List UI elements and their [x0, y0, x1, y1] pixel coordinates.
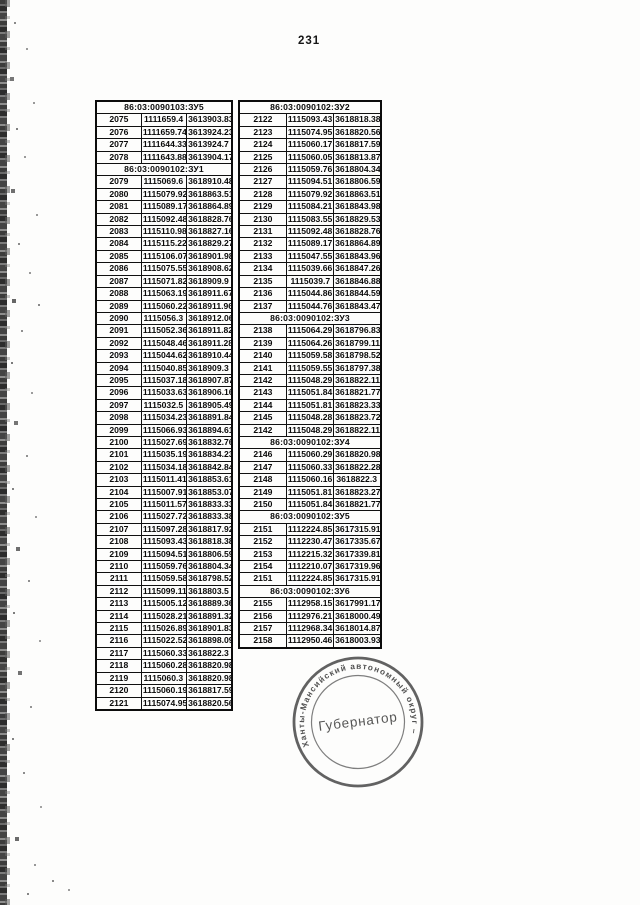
- x-coordinate-cell: 1115060.33: [141, 647, 186, 659]
- y-coordinate-cell: 3618822.11: [334, 374, 381, 386]
- table-row: 21231115074.953618820.56: [239, 126, 381, 138]
- x-coordinate-cell: 1115084.21: [286, 201, 333, 213]
- section-header-row: 86:03:0090102:ЗУ2: [239, 101, 381, 114]
- y-coordinate-cell: 3613903.83: [187, 114, 232, 126]
- y-coordinate-cell: 3618891.32: [187, 610, 232, 622]
- x-coordinate-cell: 1115094.51: [286, 176, 333, 188]
- x-coordinate-cell: 1115011.57: [141, 499, 186, 511]
- y-coordinate-cell: 3618908.62: [187, 263, 232, 275]
- x-coordinate-cell: 1112210.07: [286, 561, 333, 573]
- table-row: 20901115056.33618912.06: [96, 312, 232, 324]
- y-coordinate-cell: 3618796.83: [334, 325, 381, 337]
- y-coordinate-cell: 3618798.52: [334, 350, 381, 362]
- table-row: 20841115115.223618829.27: [96, 238, 232, 250]
- y-coordinate-cell: 3618827.16: [187, 226, 232, 238]
- point-number-cell: 2123: [239, 126, 286, 138]
- table-row: 21251115060.053618813.87: [239, 151, 381, 163]
- x-coordinate-cell: 1115051.84: [286, 387, 333, 399]
- y-coordinate-cell: 3618912.06: [187, 312, 232, 324]
- table-row: 20921115048.463618911.28: [96, 337, 232, 349]
- point-number-cell: 2154: [239, 561, 286, 573]
- table-row: 21221115093.433618818.38: [239, 114, 381, 126]
- y-coordinate-cell: 3618823.33: [334, 399, 381, 411]
- y-coordinate-cell: 3618014.87: [334, 623, 381, 635]
- table-row: 21421115048.293618822.11: [239, 424, 381, 436]
- point-number-cell: 2136: [239, 288, 286, 300]
- table-row: 21271115094.513618806.59: [239, 176, 381, 188]
- y-coordinate-cell: 3618891.84: [187, 412, 232, 424]
- x-coordinate-cell: 1115047.55: [286, 250, 333, 262]
- table-row: 20961115033.633618906.16: [96, 387, 232, 399]
- table-row: 21551112958.153617991.17: [239, 598, 381, 610]
- y-coordinate-cell: 3617315.91: [334, 573, 381, 585]
- y-coordinate-cell: 3618820.98: [187, 660, 232, 672]
- table-row: 21151115026.893618901.83: [96, 623, 232, 635]
- table-row: 20991115066.933618894.61: [96, 424, 232, 436]
- y-coordinate-cell: 3618901.83: [187, 623, 232, 635]
- x-coordinate-cell: 1112976.21: [286, 610, 333, 622]
- point-number-cell: 2107: [96, 523, 141, 535]
- table-row: 20811115089.173618864.89: [96, 201, 232, 213]
- y-coordinate-cell: 3618844.59: [334, 288, 381, 300]
- y-coordinate-cell: 3618822.11: [334, 424, 381, 436]
- x-coordinate-cell: 1115005.12: [141, 598, 186, 610]
- y-coordinate-cell: 3618843.96: [334, 250, 381, 262]
- table-row: 20861115075.553618908.62: [96, 263, 232, 275]
- point-number-cell: 2138: [239, 325, 286, 337]
- point-number-cell: 2080: [96, 188, 141, 200]
- y-coordinate-cell: 3618911.82: [187, 325, 232, 337]
- y-coordinate-cell: 3618817.59: [334, 139, 381, 151]
- table-row: 21311115092.483618828.76: [239, 226, 381, 238]
- point-number-cell: 2082: [96, 213, 141, 225]
- y-coordinate-cell: 3618909.9: [187, 275, 232, 287]
- point-number-cell: 2105: [96, 499, 141, 511]
- table-row: 21401115059.583618798.52: [239, 350, 381, 362]
- point-number-cell: 2115: [96, 623, 141, 635]
- table-row: 21171115060.333618822.3: [96, 647, 232, 659]
- y-coordinate-cell: 3618828.76: [334, 226, 381, 238]
- y-coordinate-cell: 3618820.56: [334, 126, 381, 138]
- y-coordinate-cell: 3618911.67: [187, 288, 232, 300]
- x-coordinate-cell: 1115060.3: [141, 672, 186, 684]
- point-number-cell: 2144: [239, 399, 286, 411]
- y-coordinate-cell: 3618901.98: [187, 250, 232, 262]
- point-number-cell: 2108: [96, 536, 141, 548]
- x-coordinate-cell: 1115060.33: [286, 461, 333, 473]
- point-number-cell: 2096: [96, 387, 141, 399]
- point-number-cell: 2124: [239, 139, 286, 151]
- point-number-cell: 2095: [96, 374, 141, 386]
- x-coordinate-cell: 1115060.19: [141, 685, 186, 697]
- x-coordinate-cell: 1115060.17: [286, 139, 333, 151]
- point-number-cell: 2120: [96, 685, 141, 697]
- scan-noise-specks: [0, 0, 2, 2]
- y-coordinate-cell: 3618905.49: [187, 399, 232, 411]
- point-number-cell: 2141: [239, 362, 286, 374]
- x-coordinate-cell: 1112958.15: [286, 598, 333, 610]
- point-number-cell: 2149: [239, 486, 286, 498]
- coordinates-table-right: 86:03:0090102:ЗУ221221115093.433618818.3…: [238, 100, 382, 649]
- y-coordinate-cell: 3618817.59: [187, 685, 232, 697]
- section-header: 86:03:0090102:ЗУ4: [239, 436, 381, 448]
- x-coordinate-cell: 1115059.55: [286, 362, 333, 374]
- x-coordinate-cell: 1112224.85: [286, 523, 333, 535]
- point-number-cell: 2156: [239, 610, 286, 622]
- x-coordinate-cell: 1112968.34: [286, 623, 333, 635]
- table-row: 20821115092.483618828.76: [96, 213, 232, 225]
- section-header: 86:03:0090103:ЗУ5: [96, 101, 232, 114]
- point-number-cell: 2101: [96, 449, 141, 461]
- section-header: 86:03:0090102:ЗУ6: [239, 585, 381, 597]
- table-row: 21571112968.343618014.87: [239, 623, 381, 635]
- section-header-row: 86:03:0090102:ЗУ5: [239, 511, 381, 523]
- point-number-cell: 2114: [96, 610, 141, 622]
- x-coordinate-cell: 1115059.58: [141, 573, 186, 585]
- x-coordinate-cell: 1112215.32: [286, 548, 333, 560]
- x-coordinate-cell: 1115094.51: [141, 548, 186, 560]
- table-row: 21441115051.813618823.33: [239, 399, 381, 411]
- table-row: 21021115034.183618842.84: [96, 461, 232, 473]
- table-row: 20881115063.193618911.67: [96, 288, 232, 300]
- y-coordinate-cell: 3618823.72: [334, 412, 381, 424]
- table-row: 21051115011.573618833.33: [96, 499, 232, 511]
- x-coordinate-cell: 1115059.76: [286, 164, 333, 176]
- stamp-center-text: Губернатор: [318, 709, 399, 734]
- table-row: 20971115032.53618905.49: [96, 399, 232, 411]
- section-header-row: 86:03:0090102:ЗУ1: [96, 164, 232, 176]
- y-coordinate-cell: 3618846.88: [334, 275, 381, 287]
- x-coordinate-cell: 1115007.91: [141, 486, 186, 498]
- x-coordinate-cell: 1115071.82: [141, 275, 186, 287]
- y-coordinate-cell: 3618820.98: [334, 449, 381, 461]
- table-row: 21071115097.283618817.92: [96, 523, 232, 535]
- x-coordinate-cell: 1115060.22: [141, 300, 186, 312]
- point-number-cell: 2093: [96, 350, 141, 362]
- y-coordinate-cell: 3618821.77: [334, 387, 381, 399]
- point-number-cell: 2127: [239, 176, 286, 188]
- x-coordinate-cell: 1115063.19: [141, 288, 186, 300]
- y-coordinate-cell: 3618806.59: [187, 548, 232, 560]
- table-row: 20941115040.853618909.3: [96, 362, 232, 374]
- y-coordinate-cell: 3618863.51: [334, 188, 381, 200]
- y-coordinate-cell: 3618832.76: [187, 436, 232, 448]
- y-coordinate-cell: 3618863.51: [187, 188, 232, 200]
- x-coordinate-cell: 1115093.43: [286, 114, 333, 126]
- y-coordinate-cell: 3618909.3: [187, 362, 232, 374]
- point-number-cell: 2091: [96, 325, 141, 337]
- table-row: 21181115060.283618820.98: [96, 660, 232, 672]
- x-coordinate-cell: 1115083.55: [286, 213, 333, 225]
- point-number-cell: 2128: [239, 188, 286, 200]
- table-row: 21211115074.953618820.56: [96, 697, 232, 710]
- y-coordinate-cell: 3618906.16: [187, 387, 232, 399]
- x-coordinate-cell: 1115060.05: [286, 151, 333, 163]
- x-coordinate-cell: 1115075.55: [141, 263, 186, 275]
- point-number-cell: 2109: [96, 548, 141, 560]
- x-coordinate-cell: 1111644.33: [141, 139, 186, 151]
- point-number-cell: 2130: [239, 213, 286, 225]
- y-coordinate-cell: 3618853.07: [187, 486, 232, 498]
- y-coordinate-cell: 3618911.96: [187, 300, 232, 312]
- x-coordinate-cell: 1115051.84: [286, 499, 333, 511]
- table-row: 21351115039.73618846.88: [239, 275, 381, 287]
- y-coordinate-cell: 3618822.3: [187, 647, 232, 659]
- table-row: 20911115052.363618911.82: [96, 325, 232, 337]
- table-row: 20851115106.073618901.98: [96, 250, 232, 262]
- table-row: 21541112210.073617319.96: [239, 561, 381, 573]
- y-coordinate-cell: 3618910.48: [187, 176, 232, 188]
- y-coordinate-cell: 3618898.09: [187, 635, 232, 647]
- table-row: 21081115093.433618818.38: [96, 536, 232, 548]
- point-number-cell: 2148: [239, 474, 286, 486]
- table-row: 21201115060.193618817.59: [96, 685, 232, 697]
- y-coordinate-cell: 3618911.28: [187, 337, 232, 349]
- x-coordinate-cell: 1111643.88: [141, 151, 186, 163]
- y-coordinate-cell: 3618798.52: [187, 573, 232, 585]
- y-coordinate-cell: 3618821.77: [334, 499, 381, 511]
- x-coordinate-cell: 1115060.28: [141, 660, 186, 672]
- table-row: 21261115059.763618804.34: [239, 164, 381, 176]
- x-coordinate-cell: 1115064.26: [286, 337, 333, 349]
- point-number-cell: 2092: [96, 337, 141, 349]
- table-row: 21451115048.283618823.72: [239, 412, 381, 424]
- x-coordinate-cell: 1115028.21: [141, 610, 186, 622]
- x-coordinate-cell: 1115097.28: [141, 523, 186, 535]
- point-number-cell: 2146: [239, 449, 286, 461]
- point-number-cell: 2102: [96, 461, 141, 473]
- table-row: 21321115089.173618864.89: [239, 238, 381, 250]
- x-coordinate-cell: 1115060.16: [286, 474, 333, 486]
- point-number-cell: 2078: [96, 151, 141, 163]
- table-row: 21461115060.293618820.98: [239, 449, 381, 461]
- point-number-cell: 2139: [239, 337, 286, 349]
- y-coordinate-cell: 3618823.27: [334, 486, 381, 498]
- table-row: 21001115027.693618832.76: [96, 436, 232, 448]
- point-number-cell: 2129: [239, 201, 286, 213]
- stamp-seal-icon: Ханты-Мансийский автономный округ – Югра…: [272, 636, 444, 808]
- x-coordinate-cell: 1115064.29: [286, 325, 333, 337]
- y-coordinate-cell: 3618804.34: [187, 561, 232, 573]
- point-number-cell: 2081: [96, 201, 141, 213]
- y-coordinate-cell: 3618847.26: [334, 263, 381, 275]
- x-coordinate-cell: 1115092.48: [286, 226, 333, 238]
- point-number-cell: 2140: [239, 350, 286, 362]
- x-coordinate-cell: 1115048.46: [141, 337, 186, 349]
- table-row: 20801115079.923618863.51: [96, 188, 232, 200]
- section-header-row: 86:03:0090102:ЗУ4: [239, 436, 381, 448]
- table-row: 21101115059.763618804.34: [96, 561, 232, 573]
- y-coordinate-cell: 3618833.38: [187, 511, 232, 523]
- table-row: 20931115044.623618910.44: [96, 350, 232, 362]
- y-coordinate-cell: 3618834.23: [187, 449, 232, 461]
- table-row: 20781111643.883613904.17: [96, 151, 232, 163]
- section-header-row: 86:03:0090103:ЗУ5: [96, 101, 232, 114]
- point-number-cell: 2098: [96, 412, 141, 424]
- point-number-cell: 2151: [239, 573, 286, 585]
- table-row: 21191115060.33618820.98: [96, 672, 232, 684]
- y-coordinate-cell: 3618820.98: [187, 672, 232, 684]
- table-row: 21291115084.213618843.98: [239, 201, 381, 213]
- table-row: 21511112224.853617315.91: [239, 523, 381, 535]
- point-number-cell: 2150: [239, 499, 286, 511]
- y-coordinate-cell: 3618797.38: [334, 362, 381, 374]
- point-number-cell: 2125: [239, 151, 286, 163]
- y-coordinate-cell: 3618842.84: [187, 461, 232, 473]
- x-coordinate-cell: 1115115.22: [141, 238, 186, 250]
- x-coordinate-cell: 1115026.89: [141, 623, 186, 635]
- x-coordinate-cell: 1115044.62: [141, 350, 186, 362]
- y-coordinate-cell: 3618000.49: [334, 610, 381, 622]
- y-coordinate-cell: 3617339.81: [334, 548, 381, 560]
- table-row: 21141115028.213618891.32: [96, 610, 232, 622]
- table-row: 21131115005.123618889.36: [96, 598, 232, 610]
- y-coordinate-cell: 3618833.33: [187, 499, 232, 511]
- x-coordinate-cell: 1115011.41: [141, 474, 186, 486]
- section-header: 86:03:0090102:ЗУ5: [239, 511, 381, 523]
- y-coordinate-cell: 3618799.11: [334, 337, 381, 349]
- point-number-cell: 2151: [239, 523, 286, 535]
- table-row: 20751111659.43613903.83: [96, 114, 232, 126]
- table-row: 21501115051.843618821.77: [239, 499, 381, 511]
- x-coordinate-cell: 1112230.47: [286, 536, 333, 548]
- table-row: 20871115071.823618909.9: [96, 275, 232, 287]
- y-coordinate-cell: 3617991.17: [334, 598, 381, 610]
- table-row: 21391115064.263618799.11: [239, 337, 381, 349]
- x-coordinate-cell: 1115056.3: [141, 312, 186, 324]
- point-number-cell: 2142: [239, 374, 286, 386]
- y-coordinate-cell: 3618828.76: [187, 213, 232, 225]
- y-coordinate-cell: 3618822.28: [334, 461, 381, 473]
- point-number-cell: 2111: [96, 573, 141, 585]
- x-coordinate-cell: 1111659.4: [141, 114, 186, 126]
- y-coordinate-cell: 3618817.92: [187, 523, 232, 535]
- y-coordinate-cell: 3618820.56: [187, 697, 232, 710]
- point-number-cell: 2118: [96, 660, 141, 672]
- table-row: 21531112215.323617339.81: [239, 548, 381, 560]
- point-number-cell: 2113: [96, 598, 141, 610]
- point-number-cell: 2103: [96, 474, 141, 486]
- table-row: 20791115069.63618910.48: [96, 176, 232, 188]
- coordinates-table-left: 86:03:0090103:ЗУ520751111659.43613903.83…: [95, 100, 233, 711]
- point-number-cell: 2100: [96, 436, 141, 448]
- y-coordinate-cell: 3618804.34: [334, 164, 381, 176]
- x-coordinate-cell: 1115066.93: [141, 424, 186, 436]
- x-coordinate-cell: 1115089.17: [286, 238, 333, 250]
- table-row: 21241115060.173618817.59: [239, 139, 381, 151]
- y-coordinate-cell: 3617319.96: [334, 561, 381, 573]
- x-coordinate-cell: 1115052.36: [141, 325, 186, 337]
- point-number-cell: 2142: [239, 424, 286, 436]
- document-page: 231 86:03:0090103:ЗУ520751111659.4361390…: [0, 0, 640, 905]
- point-number-cell: 2094: [96, 362, 141, 374]
- point-number-cell: 2079: [96, 176, 141, 188]
- section-header: 86:03:0090102:ЗУ1: [96, 164, 232, 176]
- y-coordinate-cell: 3618843.98: [334, 201, 381, 213]
- point-number-cell: 2126: [239, 164, 286, 176]
- point-number-cell: 2137: [239, 300, 286, 312]
- y-coordinate-cell: 3618806.59: [334, 176, 381, 188]
- table-row: 21061115027.723618833.38: [96, 511, 232, 523]
- point-number-cell: 2131: [239, 226, 286, 238]
- scan-edge-smudge: [5, 0, 10, 905]
- y-coordinate-cell: 3618864.89: [334, 238, 381, 250]
- y-coordinate-cell: 3618843.47: [334, 300, 381, 312]
- x-coordinate-cell: 1115040.85: [141, 362, 186, 374]
- x-coordinate-cell: 1115110.98: [141, 226, 186, 238]
- x-coordinate-cell: 1115032.5: [141, 399, 186, 411]
- x-coordinate-cell: 1115034.23: [141, 412, 186, 424]
- point-number-cell: 2117: [96, 647, 141, 659]
- y-coordinate-cell: 3618829.53: [334, 213, 381, 225]
- y-coordinate-cell: 3618894.61: [187, 424, 232, 436]
- x-coordinate-cell: 1115035.19: [141, 449, 186, 461]
- table-row: 21411115059.553618797.38: [239, 362, 381, 374]
- table-row: 21511112224.853617315.91: [239, 573, 381, 585]
- y-coordinate-cell: 3618889.36: [187, 598, 232, 610]
- table-row: 21031115011.413618853.61: [96, 474, 232, 486]
- y-coordinate-cell: 3618907.87: [187, 374, 232, 386]
- table-row: 21111115059.583618798.52: [96, 573, 232, 585]
- point-number-cell: 2086: [96, 263, 141, 275]
- x-coordinate-cell: 1115022.52: [141, 635, 186, 647]
- point-number-cell: 2106: [96, 511, 141, 523]
- page-number: 231: [298, 35, 342, 47]
- point-number-cell: 2085: [96, 250, 141, 262]
- table-row: 21121115099.113618803.5: [96, 585, 232, 597]
- point-number-cell: 2122: [239, 114, 286, 126]
- table-row: 21161115022.523618898.09: [96, 635, 232, 647]
- point-number-cell: 2110: [96, 561, 141, 573]
- table-row: 21521112230.473617335.67: [239, 536, 381, 548]
- x-coordinate-cell: 1115079.92: [286, 188, 333, 200]
- y-coordinate-cell: 3618818.38: [334, 114, 381, 126]
- x-coordinate-cell: 1115060.29: [286, 449, 333, 461]
- point-number-cell: 2083: [96, 226, 141, 238]
- table-row: 21041115007.913618853.07: [96, 486, 232, 498]
- governor-stamp: Ханты-Мансийский автономный округ – Югра…: [272, 636, 444, 808]
- point-number-cell: 2097: [96, 399, 141, 411]
- section-header: 86:03:0090102:ЗУ3: [239, 312, 381, 324]
- point-number-cell: 2121: [96, 697, 141, 710]
- point-number-cell: 2116: [96, 635, 141, 647]
- y-coordinate-cell: 3618813.87: [334, 151, 381, 163]
- x-coordinate-cell: 1115039.66: [286, 263, 333, 275]
- point-number-cell: 2076: [96, 126, 141, 138]
- y-coordinate-cell: 3617315.91: [334, 523, 381, 535]
- x-coordinate-cell: 1115074.95: [141, 697, 186, 710]
- table-row: 20831115110.983618827.16: [96, 226, 232, 238]
- x-coordinate-cell: 1115027.69: [141, 436, 186, 448]
- point-number-cell: 2090: [96, 312, 141, 324]
- y-coordinate-cell: 3618910.44: [187, 350, 232, 362]
- x-coordinate-cell: 1115059.76: [141, 561, 186, 573]
- x-coordinate-cell: 1115074.95: [286, 126, 333, 138]
- point-number-cell: 2158: [239, 635, 286, 648]
- section-header-row: 86:03:0090102:ЗУ3: [239, 312, 381, 324]
- point-number-cell: 2155: [239, 598, 286, 610]
- point-number-cell: 2135: [239, 275, 286, 287]
- x-coordinate-cell: 1112950.46: [286, 635, 333, 648]
- table-row: 21341115039.663618847.26: [239, 263, 381, 275]
- table-row: 21371115044.763618843.47: [239, 300, 381, 312]
- x-coordinate-cell: 1115079.92: [141, 188, 186, 200]
- table-row: 20771111644.333613924.7: [96, 139, 232, 151]
- point-number-cell: 2152: [239, 536, 286, 548]
- y-coordinate-cell: 3618864.89: [187, 201, 232, 213]
- point-number-cell: 2132: [239, 238, 286, 250]
- y-coordinate-cell: 3618803.5: [187, 585, 232, 597]
